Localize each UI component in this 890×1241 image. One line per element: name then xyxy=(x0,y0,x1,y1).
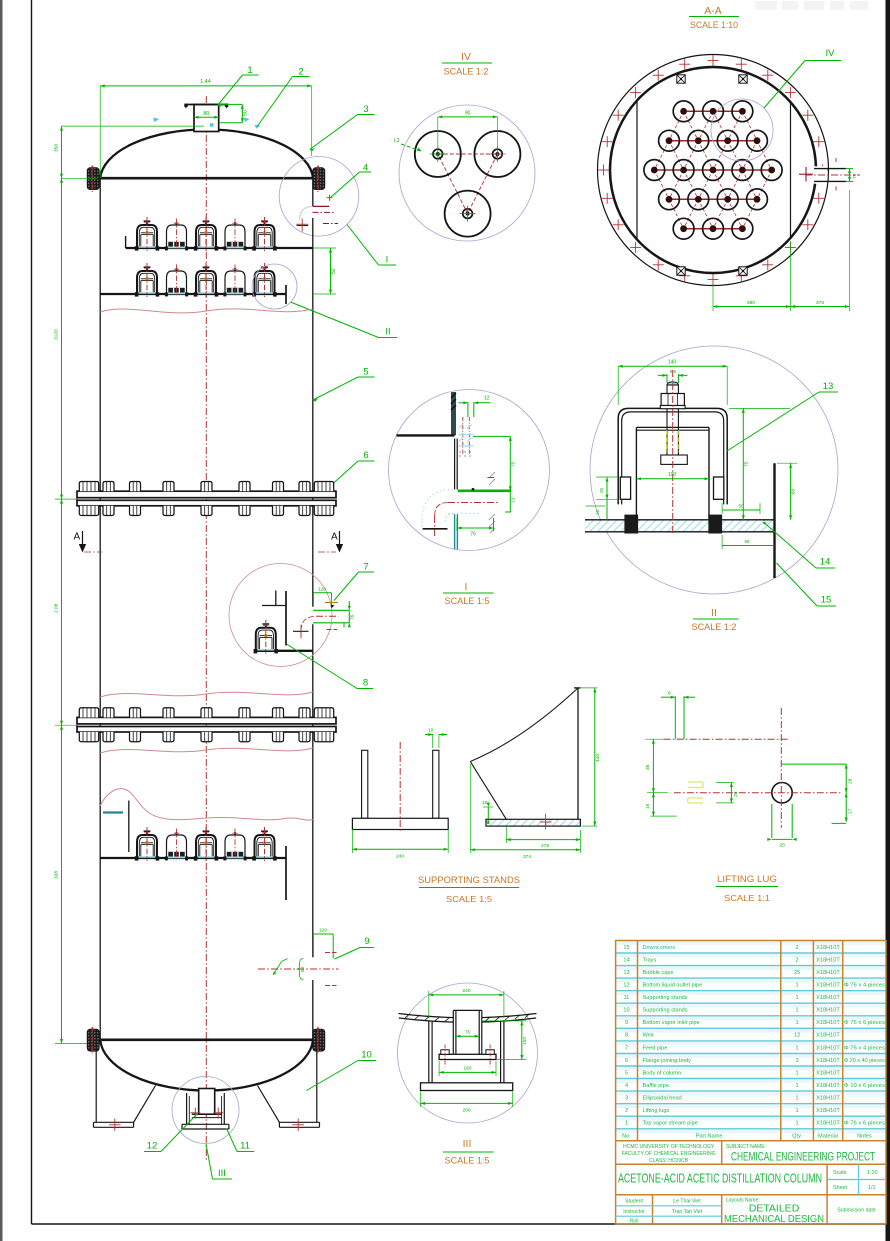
svg-text:10: 10 xyxy=(623,1008,629,1014)
svg-text:X18H10T: X18H10T xyxy=(816,970,840,976)
svg-text:1.44: 1.44 xyxy=(200,79,211,85)
svg-text:SCALE 1:10: SCALE 1:10 xyxy=(690,20,738,30)
svg-text:A-A: A-A xyxy=(704,5,722,17)
svg-text:X18H10T: X18H10T xyxy=(816,995,840,1001)
svg-text:Flange joining body: Flange joining body xyxy=(643,1058,692,1064)
svg-text:III: III xyxy=(463,1138,472,1150)
svg-text:MECHANICAL DESIGN: MECHANICAL DESIGN xyxy=(724,1213,824,1225)
svg-text:140: 140 xyxy=(668,360,677,366)
svg-text:Roll: Roll xyxy=(630,1218,639,1224)
svg-text:90: 90 xyxy=(465,111,471,117)
svg-text:5: 5 xyxy=(363,367,368,378)
svg-text:2: 2 xyxy=(796,957,799,963)
svg-text:A: A xyxy=(74,532,81,543)
svg-text:1: 1 xyxy=(796,1121,799,1127)
svg-text:9: 9 xyxy=(364,936,369,947)
svg-text:Φ 76 x 4 pieces: Φ 76 x 4 pieces xyxy=(844,1045,885,1051)
svg-text:Body of column: Body of column xyxy=(643,1070,682,1076)
svg-text:SCALE 1:5: SCALE 1:5 xyxy=(446,894,492,904)
svg-text:Baffle pipe: Baffle pipe xyxy=(643,1083,669,1089)
svg-text:60: 60 xyxy=(791,488,797,494)
svg-text:10: 10 xyxy=(428,728,434,734)
svg-text:I: I xyxy=(386,255,389,266)
svg-text:SCALE 1:5: SCALE 1:5 xyxy=(445,1156,490,1166)
svg-text:25: 25 xyxy=(599,487,604,493)
svg-text:75: 75 xyxy=(465,1030,471,1036)
svg-text:Φ 76 x 6 pieces: Φ 76 x 6 pieces xyxy=(844,1020,885,1026)
svg-text:60: 60 xyxy=(300,966,306,972)
svg-text:Downcomers: Downcomers xyxy=(643,945,676,951)
svg-text:10: 10 xyxy=(595,509,600,515)
svg-text:SCALE 1:2: SCALE 1:2 xyxy=(692,622,737,632)
svg-text:Supporting stands: Supporting stands xyxy=(643,1008,688,1014)
svg-text:1: 1 xyxy=(247,65,252,76)
svg-text:6: 6 xyxy=(668,691,671,697)
svg-text:CLASS: HC09CB: CLASS: HC09CB xyxy=(649,1158,689,1164)
svg-text:2: 2 xyxy=(625,1108,628,1114)
svg-text:Top vapor stream pipe: Top vapor stream pipe xyxy=(643,1121,698,1127)
svg-text:278: 278 xyxy=(541,843,549,849)
svg-text:III: III xyxy=(218,1168,226,1179)
svg-text:Bottom liquid outlet pipe: Bottom liquid outlet pipe xyxy=(643,983,703,989)
svg-text:15: 15 xyxy=(821,595,832,606)
svg-text:20: 20 xyxy=(733,791,739,797)
svg-text:12: 12 xyxy=(623,983,629,989)
svg-text:75: 75 xyxy=(510,461,516,467)
svg-text:t.2: t.2 xyxy=(394,138,400,144)
svg-text:8: 8 xyxy=(363,678,368,689)
svg-text:Bubble caps: Bubble caps xyxy=(643,970,674,976)
svg-text:11: 11 xyxy=(624,995,630,1001)
svg-text:Φ 20 x 40 pieces: Φ 20 x 40 pieces xyxy=(844,1058,885,1064)
svg-text:1: 1 xyxy=(796,983,799,989)
svg-text:1: 1 xyxy=(796,1008,799,1014)
svg-text:65: 65 xyxy=(744,539,750,544)
svg-text:10: 10 xyxy=(361,1050,372,1061)
svg-text:2.08: 2.08 xyxy=(54,603,60,613)
svg-text:14: 14 xyxy=(820,557,831,568)
svg-text:II: II xyxy=(385,327,390,338)
svg-text:290: 290 xyxy=(462,1108,470,1114)
svg-text:IV: IV xyxy=(461,51,471,63)
svg-text:17: 17 xyxy=(848,808,854,814)
svg-text:X18H10T: X18H10T xyxy=(816,1083,840,1089)
svg-text:Bottom vapor inlet pipe: Bottom vapor inlet pipe xyxy=(643,1020,700,1026)
svg-text:X18H10T: X18H10T xyxy=(816,945,840,951)
svg-text:Notes: Notes xyxy=(857,1133,872,1139)
svg-text:9: 9 xyxy=(625,1020,628,1026)
svg-text:76: 76 xyxy=(350,614,356,620)
svg-text:240: 240 xyxy=(462,988,470,994)
svg-text:II: II xyxy=(711,607,717,619)
svg-text:1: 1 xyxy=(796,995,799,1001)
svg-text:25: 25 xyxy=(794,970,800,976)
svg-text:Le Thai Viet: Le Thai Viet xyxy=(673,1199,701,1205)
svg-text:X18H10T: X18H10T xyxy=(816,1108,840,1114)
svg-text:12: 12 xyxy=(484,396,490,402)
svg-text:FACULTY OF CHEMICAL ENGINEERIN: FACULTY OF CHEMICAL ENGINEERING xyxy=(622,1151,716,1157)
svg-text:1: 1 xyxy=(796,1020,799,1026)
svg-text:X18H10T: X18H10T xyxy=(816,1058,840,1064)
svg-text:LIFTING LUG: LIFTING LUG xyxy=(717,874,777,884)
svg-text:2: 2 xyxy=(298,67,303,78)
svg-text:350: 350 xyxy=(54,144,60,152)
svg-text:X18H10T: X18H10T xyxy=(816,1070,840,1076)
svg-text:76: 76 xyxy=(470,532,476,538)
svg-text:No.: No. xyxy=(622,1133,631,1139)
svg-text:120: 120 xyxy=(319,928,327,934)
svg-text:3: 3 xyxy=(796,1058,799,1064)
svg-text:SCALE 1:5: SCALE 1:5 xyxy=(445,596,490,606)
svg-text:12: 12 xyxy=(147,1141,158,1152)
svg-text:Φ 10 x 6 pieces: Φ 10 x 6 pieces xyxy=(844,1083,885,1089)
svg-text:2: 2 xyxy=(796,945,799,951)
svg-text:X18H10T: X18H10T xyxy=(816,1008,840,1014)
svg-text:12: 12 xyxy=(794,1033,800,1039)
svg-text:50: 50 xyxy=(738,504,744,509)
svg-text:6: 6 xyxy=(625,1058,628,1064)
svg-text:7: 7 xyxy=(625,1045,628,1051)
svg-text:16: 16 xyxy=(645,803,651,809)
svg-text:120: 120 xyxy=(318,587,326,593)
svg-text:50: 50 xyxy=(243,110,249,116)
svg-text:X18H10T: X18H10T xyxy=(816,957,840,963)
svg-text:Lifting lugs: Lifting lugs xyxy=(643,1108,670,1114)
svg-text:75: 75 xyxy=(743,461,749,467)
svg-text:Trays: Trays xyxy=(643,957,657,963)
svg-text:15: 15 xyxy=(482,800,488,806)
svg-text:338: 338 xyxy=(54,871,60,879)
svg-text:Student: Student xyxy=(625,1199,643,1205)
svg-text:13: 13 xyxy=(623,970,629,976)
svg-text:13: 13 xyxy=(823,381,834,392)
svg-text:6: 6 xyxy=(363,450,368,461)
svg-text:50: 50 xyxy=(331,268,337,274)
svg-text:8: 8 xyxy=(625,1033,628,1039)
svg-text:7: 7 xyxy=(363,562,368,573)
svg-text:440: 440 xyxy=(595,754,601,762)
svg-text:1: 1 xyxy=(796,1070,799,1076)
svg-text:4: 4 xyxy=(625,1083,628,1089)
svg-text:X18H10T: X18H10T xyxy=(816,1020,840,1026)
svg-text:160: 160 xyxy=(463,1066,471,1072)
svg-text:580: 580 xyxy=(747,300,755,306)
svg-text:SCALE 1:2: SCALE 1:2 xyxy=(444,67,489,77)
svg-text:1: 1 xyxy=(796,1045,799,1051)
svg-text:Φ 76 x 6 pieces: Φ 76 x 6 pieces xyxy=(844,1121,885,1127)
svg-text:3120: 3120 xyxy=(54,329,60,340)
svg-text:ACETONE-ACID ACETIC DISTILLATI: ACETONE-ACID ACETIC DISTILLATION COLUMN xyxy=(618,1172,822,1186)
svg-text:1: 1 xyxy=(625,1121,628,1127)
svg-text:1: 1 xyxy=(796,1083,799,1089)
svg-text:1: 1 xyxy=(796,1108,799,1114)
svg-text:SUPPORTING STANDS: SUPPORTING STANDS xyxy=(418,875,520,885)
svg-text:X18H10T: X18H10T xyxy=(816,983,840,989)
svg-text:13: 13 xyxy=(510,497,516,503)
svg-text:Feed pipe: Feed pipe xyxy=(643,1045,668,1051)
svg-text:35: 35 xyxy=(645,764,651,770)
svg-text:Material: Material xyxy=(818,1133,838,1139)
svg-text:9.6: 9.6 xyxy=(670,369,677,374)
svg-text:HCMC UNIVERSITY OF TECHNOLOGY: HCMC UNIVERSITY OF TECHNOLOGY xyxy=(623,1144,715,1150)
svg-text:X18H10T: X18H10T xyxy=(816,1033,840,1039)
svg-text:11: 11 xyxy=(240,1141,250,1152)
svg-text:Tran Tan Viet: Tran Tan Viet xyxy=(672,1209,703,1215)
svg-text:1/1: 1/1 xyxy=(868,1185,876,1191)
svg-text:3: 3 xyxy=(625,1096,628,1102)
svg-text:374: 374 xyxy=(523,854,531,860)
svg-text:X18H10T: X18H10T xyxy=(816,1045,840,1051)
svg-text:X18H10T: X18H10T xyxy=(816,1096,840,1102)
svg-text:I: I xyxy=(465,581,468,593)
svg-text:100: 100 xyxy=(668,472,677,478)
svg-text:IV: IV xyxy=(826,48,836,59)
svg-text:376: 376 xyxy=(816,300,824,306)
svg-text:3: 3 xyxy=(363,104,368,115)
svg-text:1:10: 1:10 xyxy=(867,1170,878,1176)
svg-text:A: A xyxy=(331,532,338,543)
svg-text:Φ 76 x 4 pieces: Φ 76 x 4 pieces xyxy=(844,983,885,989)
svg-text:Scale: Scale xyxy=(833,1170,847,1176)
svg-text:14: 14 xyxy=(623,957,629,963)
svg-text:Submission date: Submission date xyxy=(837,1208,875,1214)
svg-text:20: 20 xyxy=(779,843,785,849)
svg-text:Instructor: Instructor xyxy=(623,1209,645,1215)
svg-text:Part Name: Part Name xyxy=(696,1133,723,1139)
svg-text:150: 150 xyxy=(522,1037,528,1045)
svg-text:80: 80 xyxy=(203,111,209,117)
svg-text:SCALE 1:1: SCALE 1:1 xyxy=(724,893,770,903)
svg-text:15: 15 xyxy=(623,945,629,951)
svg-text:76: 76 xyxy=(852,173,858,179)
svg-text:5: 5 xyxy=(625,1070,628,1076)
svg-text:Ellipsoidal head: Ellipsoidal head xyxy=(643,1096,682,1102)
svg-text:Qty.: Qty. xyxy=(792,1133,802,1139)
svg-text:Sheet: Sheet xyxy=(833,1185,848,1191)
svg-text:Supporting stands: Supporting stands xyxy=(643,995,688,1001)
svg-text:240: 240 xyxy=(396,854,404,860)
svg-text:1: 1 xyxy=(796,1096,799,1102)
svg-text:Weir: Weir xyxy=(643,1033,655,1039)
svg-text:X18H10T: X18H10T xyxy=(816,1121,840,1127)
svg-text:28: 28 xyxy=(848,778,854,784)
svg-text:CHEMICAL ENGINEERING PROJECT: CHEMICAL ENGINEERING PROJECT xyxy=(731,1150,875,1164)
